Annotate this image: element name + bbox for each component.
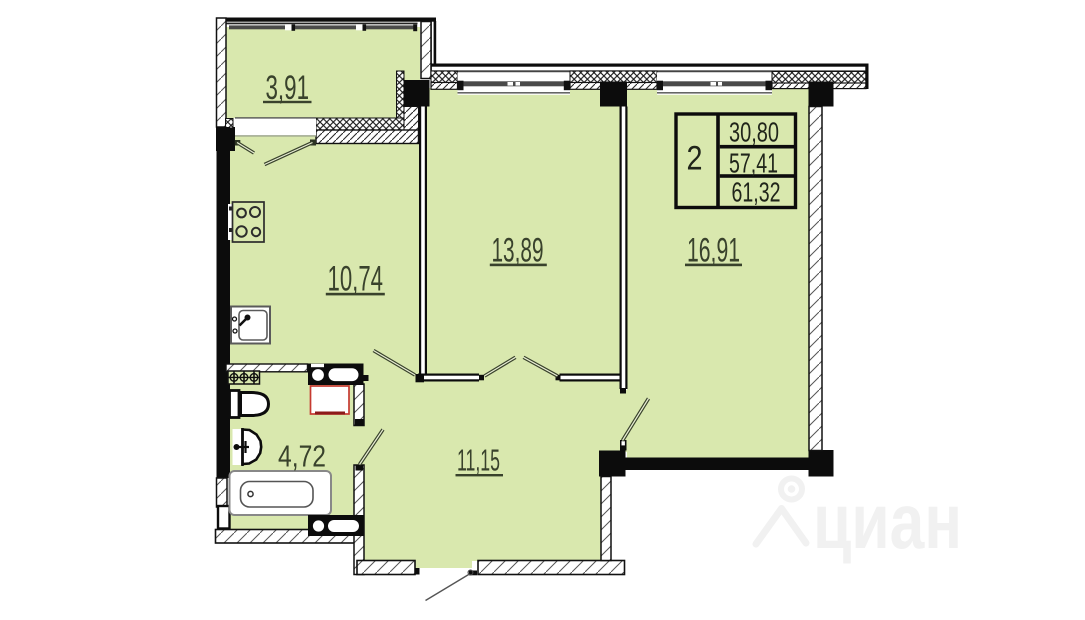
svg-text:2: 2 bbox=[687, 140, 703, 178]
svg-text:11,15: 11,15 bbox=[457, 443, 500, 478]
svg-text:циан: циан bbox=[813, 477, 962, 565]
svg-text:30,80: 30,80 bbox=[729, 117, 779, 148]
svg-text:4,72: 4,72 bbox=[278, 439, 326, 474]
svg-text:61,32: 61,32 bbox=[732, 177, 781, 208]
svg-text:57,41: 57,41 bbox=[729, 148, 778, 179]
